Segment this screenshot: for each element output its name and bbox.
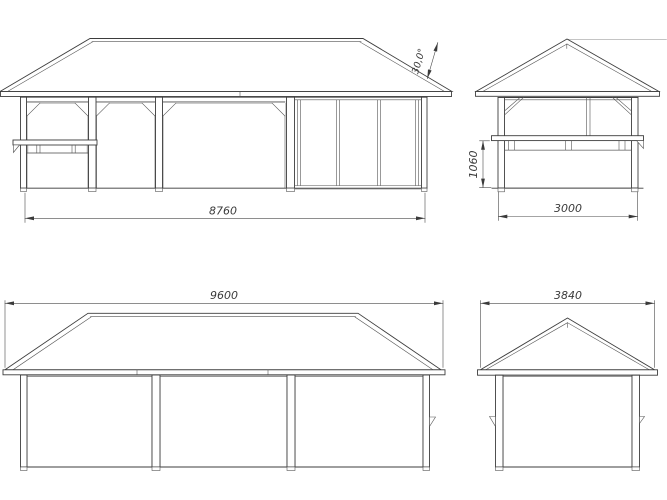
- slat-panel-3: [163, 103, 285, 188]
- roof-outline: [0, 39, 452, 92]
- front-width-label: 8760: [209, 205, 237, 218]
- center-mullion: [587, 98, 591, 136]
- slat-panel-2: [160, 377, 287, 468]
- corner-post-right: [422, 97, 428, 188]
- counter-bracket-edge-right: [640, 417, 645, 424]
- post-footings: [21, 188, 428, 191]
- fascia-board: [476, 92, 660, 97]
- counter-balusters: [28, 145, 87, 153]
- slat-panel: [503, 377, 632, 468]
- dimension-parapet-height: 1060: [467, 141, 491, 188]
- counter-bracket: [13, 145, 19, 153]
- elevation-drawing-svg: 30,0°: [0, 0, 667, 500]
- post-braces: [505, 98, 632, 116]
- rear-elevation-view: 9600: [3, 289, 445, 471]
- angle-arrowhead-top: [434, 43, 438, 52]
- roof-outline: [5, 313, 441, 370]
- counter-top: [492, 136, 644, 141]
- post-footings: [498, 188, 638, 192]
- fascia-board: [3, 370, 445, 375]
- fascia-board: [478, 370, 658, 375]
- side-width-label: 3000: [554, 202, 582, 215]
- hip-roof: [3, 313, 445, 375]
- hip-roof: [0, 39, 452, 97]
- rear-roof-width-label: 9600: [210, 289, 238, 302]
- roof-angle-label: 30,0°: [410, 47, 428, 75]
- sliding-door-section: [295, 100, 421, 189]
- counter-bracket-edge-left: [490, 417, 496, 427]
- roof-outline: [476, 39, 659, 92]
- post: [287, 97, 295, 188]
- slat-panel-1-upper: [27, 103, 88, 140]
- post-footings: [21, 467, 430, 471]
- parapet-height-label: 1060: [467, 151, 480, 179]
- fascia-board: [1, 92, 452, 97]
- gable-roof-width-label: 3840: [554, 289, 582, 302]
- corner-post-right: [632, 98, 639, 189]
- post-footings: [496, 467, 640, 471]
- post: [156, 97, 163, 188]
- slat-panel-1: [27, 377, 152, 468]
- bar-counter: [492, 136, 644, 151]
- roof-angle-annotation: 30,0°: [410, 43, 438, 79]
- counter-bracket-edge: [430, 417, 436, 427]
- gable-end-elevation-view: 3840: [478, 289, 658, 471]
- post: [152, 375, 160, 467]
- angle-arrowhead-bottom: [427, 69, 431, 78]
- dimension-front-width: 8760: [25, 193, 425, 223]
- gable-roof: [478, 318, 658, 375]
- side-wall: [492, 98, 644, 192]
- counter-top: [13, 140, 97, 145]
- front-elevation-view: 30,0°: [0, 39, 452, 223]
- corner-post-left: [496, 375, 504, 467]
- gable-roof: [476, 39, 660, 96]
- corner-post-right: [632, 375, 640, 467]
- corner-post-left: [21, 375, 28, 467]
- technical-drawing-sheet: 30,0°: [0, 0, 667, 500]
- corner-post-right: [423, 375, 430, 467]
- slat-panel-2: [97, 103, 156, 188]
- corner-post-left: [498, 98, 505, 189]
- dimension-side-width: 3000: [498, 192, 637, 221]
- side-elevation-view: 1060 3000: [467, 39, 667, 221]
- post: [287, 375, 295, 467]
- rear-wall: [21, 375, 436, 471]
- slat-panel-1-lower: [27, 153, 88, 188]
- slat-panel-3: [295, 377, 423, 468]
- gable-wall: [490, 375, 645, 470]
- half-wall-slats: [505, 150, 632, 188]
- counter-balusters: [509, 141, 626, 151]
- front-wall: [13, 97, 427, 191]
